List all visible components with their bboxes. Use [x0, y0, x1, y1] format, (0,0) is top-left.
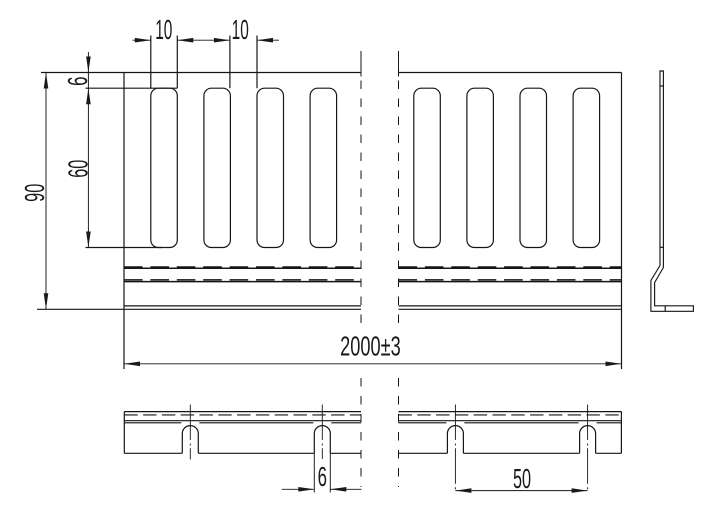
svg-text:60: 60	[62, 160, 94, 178]
svg-text:6: 6	[318, 461, 327, 493]
svg-text:50: 50	[513, 462, 531, 494]
svg-text:6: 6	[61, 77, 93, 86]
svg-text:90: 90	[18, 184, 50, 202]
svg-text:2000±3: 2000±3	[340, 332, 401, 363]
svg-text:10: 10	[232, 14, 249, 45]
svg-text:10: 10	[155, 14, 172, 45]
